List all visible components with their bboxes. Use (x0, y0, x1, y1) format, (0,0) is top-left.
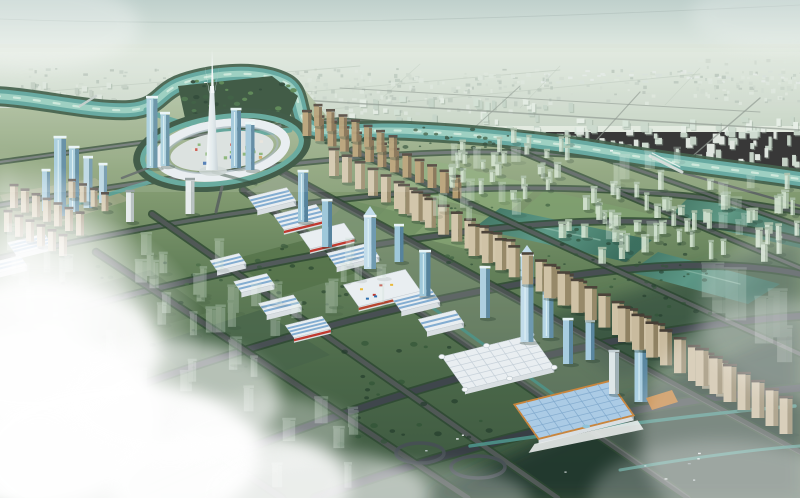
rendering-canvas (0, 0, 800, 498)
haze-wash (0, 52, 800, 192)
cloud-wisp (170, 395, 350, 465)
aerial-city-rendering (0, 0, 800, 498)
